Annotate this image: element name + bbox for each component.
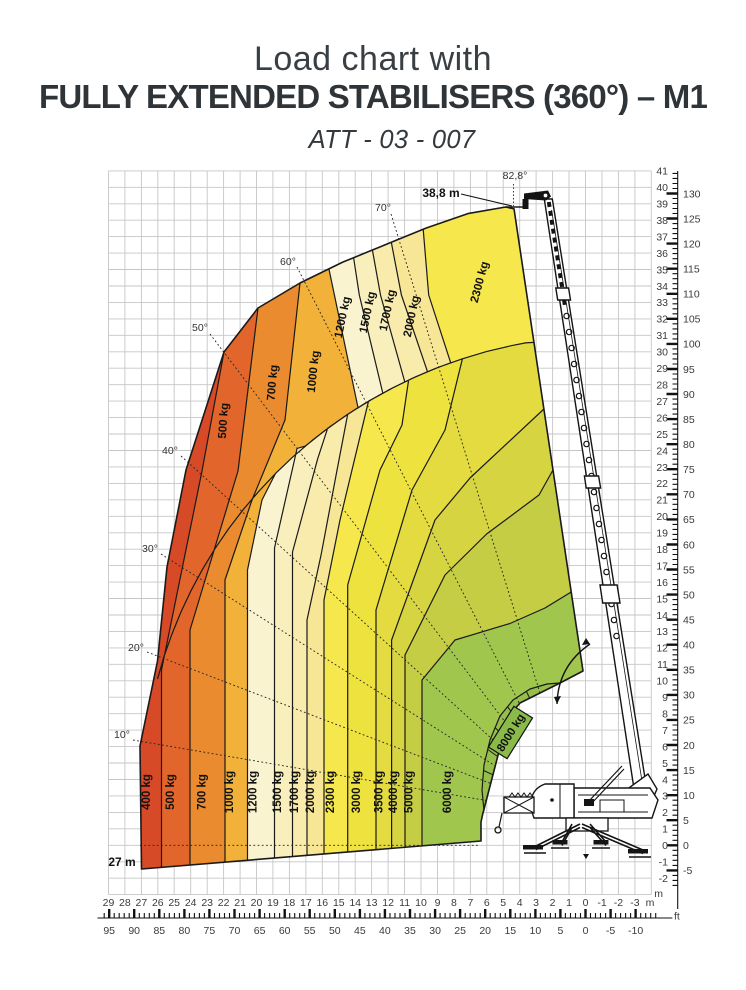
svg-text:5000 kg: 5000 kg xyxy=(404,771,416,813)
svg-text:32: 32 xyxy=(656,314,668,326)
svg-text:30°: 30° xyxy=(142,543,158,555)
svg-text:30: 30 xyxy=(656,347,668,359)
svg-text:65: 65 xyxy=(254,925,266,937)
svg-text:-10: -10 xyxy=(628,925,643,937)
svg-text:105: 105 xyxy=(683,314,701,326)
svg-text:3500 kg: 3500 kg xyxy=(374,771,386,813)
svg-text:-2: -2 xyxy=(659,873,668,885)
svg-text:40°: 40° xyxy=(162,445,178,457)
svg-text:26: 26 xyxy=(152,897,164,909)
svg-text:1500 kg: 1500 kg xyxy=(272,771,284,813)
svg-text:4000 kg: 4000 kg xyxy=(388,771,400,813)
svg-text:1: 1 xyxy=(566,897,572,909)
svg-text:ft: ft xyxy=(674,911,680,923)
svg-text:2000 kg: 2000 kg xyxy=(305,771,317,813)
svg-text:10: 10 xyxy=(415,897,427,909)
svg-text:12: 12 xyxy=(656,643,668,655)
svg-text:25: 25 xyxy=(683,715,695,727)
svg-text:10: 10 xyxy=(656,676,668,688)
svg-text:60: 60 xyxy=(683,539,695,551)
svg-text:90: 90 xyxy=(128,925,140,937)
svg-text:10°: 10° xyxy=(114,729,130,741)
svg-text:8: 8 xyxy=(662,709,668,721)
svg-text:22: 22 xyxy=(656,478,668,490)
svg-text:28: 28 xyxy=(119,897,131,909)
svg-text:-3: -3 xyxy=(630,897,639,909)
svg-text:16: 16 xyxy=(656,577,668,589)
svg-text:20: 20 xyxy=(656,511,668,523)
svg-text:75: 75 xyxy=(204,925,216,937)
svg-text:13: 13 xyxy=(656,626,668,638)
svg-text:25: 25 xyxy=(656,429,668,441)
svg-text:14: 14 xyxy=(656,610,668,622)
svg-text:85: 85 xyxy=(683,414,695,426)
svg-text:100: 100 xyxy=(683,339,701,351)
svg-text:110: 110 xyxy=(683,289,700,301)
svg-text:20: 20 xyxy=(479,925,491,937)
svg-text:35: 35 xyxy=(683,665,695,677)
svg-text:55: 55 xyxy=(304,925,316,937)
svg-text:80: 80 xyxy=(179,925,191,937)
svg-text:50: 50 xyxy=(683,589,695,601)
svg-text:20: 20 xyxy=(251,897,263,909)
svg-text:38: 38 xyxy=(656,215,668,227)
svg-text:4: 4 xyxy=(517,897,523,909)
svg-text:8: 8 xyxy=(451,897,457,909)
svg-text:120: 120 xyxy=(683,238,701,250)
svg-text:24: 24 xyxy=(185,897,197,909)
svg-text:15: 15 xyxy=(504,925,516,937)
svg-text:6000 kg: 6000 kg xyxy=(442,771,454,813)
svg-text:90: 90 xyxy=(683,389,695,401)
svg-text:55: 55 xyxy=(683,564,695,576)
svg-text:-1: -1 xyxy=(597,897,606,909)
svg-text:17: 17 xyxy=(300,897,312,909)
svg-text:95: 95 xyxy=(103,925,115,937)
svg-text:m: m xyxy=(654,888,663,900)
svg-text:50°: 50° xyxy=(192,322,208,334)
svg-text:3: 3 xyxy=(662,791,668,803)
svg-text:60: 60 xyxy=(279,925,291,937)
svg-text:500 kg: 500 kg xyxy=(165,774,177,810)
svg-text:5: 5 xyxy=(557,925,563,937)
svg-text:-5: -5 xyxy=(683,865,692,877)
svg-text:0: 0 xyxy=(683,840,689,852)
svg-text:70: 70 xyxy=(683,489,695,501)
svg-text:6: 6 xyxy=(662,741,668,753)
svg-text:38,8 m: 38,8 m xyxy=(422,186,459,200)
svg-text:25: 25 xyxy=(454,925,466,937)
svg-text:3000 kg: 3000 kg xyxy=(351,771,363,813)
svg-text:130: 130 xyxy=(683,188,701,200)
svg-text:20°: 20° xyxy=(128,642,144,654)
svg-text:15: 15 xyxy=(656,593,668,605)
svg-text:17: 17 xyxy=(656,560,668,572)
svg-text:18: 18 xyxy=(656,544,668,556)
svg-text:1700 kg: 1700 kg xyxy=(289,771,301,813)
svg-text:2: 2 xyxy=(662,807,668,819)
svg-text:29: 29 xyxy=(656,363,668,375)
svg-text:25: 25 xyxy=(168,897,180,909)
svg-text:85: 85 xyxy=(153,925,165,937)
svg-text:700 kg: 700 kg xyxy=(197,774,209,810)
svg-text:29: 29 xyxy=(103,897,115,909)
svg-text:4: 4 xyxy=(662,774,668,786)
svg-text:5: 5 xyxy=(683,815,689,827)
svg-text:23: 23 xyxy=(201,897,213,909)
svg-text:30: 30 xyxy=(429,925,441,937)
svg-text:50: 50 xyxy=(329,925,341,937)
svg-text:5: 5 xyxy=(662,758,668,770)
svg-text:1: 1 xyxy=(662,824,668,836)
svg-text:15: 15 xyxy=(683,765,695,777)
svg-text:0: 0 xyxy=(583,897,589,909)
svg-text:-1: -1 xyxy=(659,857,668,869)
svg-text:37: 37 xyxy=(656,231,668,243)
svg-text:500 kg: 500 kg xyxy=(217,403,231,440)
svg-text:115: 115 xyxy=(683,264,700,276)
svg-text:15: 15 xyxy=(333,897,345,909)
svg-text:13: 13 xyxy=(366,897,378,909)
svg-text:27: 27 xyxy=(656,396,668,408)
svg-text:2300 kg: 2300 kg xyxy=(325,771,337,813)
svg-text:400 kg: 400 kg xyxy=(141,774,153,810)
svg-text:2: 2 xyxy=(550,897,556,909)
svg-text:19: 19 xyxy=(267,897,279,909)
svg-text:19: 19 xyxy=(656,528,668,540)
svg-text:95: 95 xyxy=(683,364,695,376)
svg-text:m: m xyxy=(646,897,655,909)
svg-text:14: 14 xyxy=(349,897,361,909)
svg-text:31: 31 xyxy=(656,330,668,342)
svg-text:10: 10 xyxy=(530,925,542,937)
svg-text:24: 24 xyxy=(656,445,668,457)
svg-text:34: 34 xyxy=(656,281,668,293)
svg-text:36: 36 xyxy=(656,248,668,260)
svg-text:5: 5 xyxy=(500,897,506,909)
svg-text:23: 23 xyxy=(656,462,668,474)
svg-text:40: 40 xyxy=(683,640,695,652)
svg-text:35: 35 xyxy=(656,264,668,276)
svg-text:-2: -2 xyxy=(614,897,623,909)
svg-text:30: 30 xyxy=(683,690,695,702)
svg-text:75: 75 xyxy=(683,464,695,476)
svg-text:27: 27 xyxy=(136,897,148,909)
svg-text:11: 11 xyxy=(657,659,668,671)
svg-text:12: 12 xyxy=(382,897,394,909)
svg-text:9: 9 xyxy=(662,692,668,704)
svg-text:16: 16 xyxy=(316,897,328,909)
svg-text:41: 41 xyxy=(656,166,668,178)
svg-text:20: 20 xyxy=(683,740,695,752)
svg-text:28: 28 xyxy=(656,380,668,392)
svg-text:70°: 70° xyxy=(375,202,391,214)
svg-text:45: 45 xyxy=(683,615,695,627)
svg-text:27 m: 27 m xyxy=(108,855,135,869)
svg-text:60°: 60° xyxy=(280,256,296,268)
svg-text:45: 45 xyxy=(354,925,366,937)
svg-text:3: 3 xyxy=(533,897,539,909)
svg-text:21: 21 xyxy=(656,495,668,507)
svg-text:11: 11 xyxy=(399,897,410,909)
svg-text:82,8°: 82,8° xyxy=(503,170,528,182)
svg-text:26: 26 xyxy=(656,412,668,424)
svg-text:35: 35 xyxy=(404,925,416,937)
svg-text:40: 40 xyxy=(656,182,668,194)
svg-text:1000 kg: 1000 kg xyxy=(224,771,236,813)
svg-text:125: 125 xyxy=(683,213,701,225)
svg-text:-5: -5 xyxy=(606,925,615,937)
svg-text:18: 18 xyxy=(284,897,296,909)
svg-text:65: 65 xyxy=(683,514,695,526)
svg-text:0: 0 xyxy=(583,925,589,937)
svg-text:39: 39 xyxy=(656,199,668,211)
svg-text:22: 22 xyxy=(218,897,230,909)
svg-text:80: 80 xyxy=(683,439,695,451)
svg-text:21: 21 xyxy=(234,897,246,909)
svg-text:40: 40 xyxy=(379,925,391,937)
svg-text:9: 9 xyxy=(435,897,441,909)
svg-text:6: 6 xyxy=(484,897,490,909)
svg-text:7: 7 xyxy=(467,897,473,909)
svg-text:0: 0 xyxy=(662,840,668,852)
svg-text:1200 kg: 1200 kg xyxy=(248,771,260,813)
svg-text:33: 33 xyxy=(656,297,668,309)
svg-text:70: 70 xyxy=(229,925,241,937)
svg-text:10: 10 xyxy=(683,790,695,802)
svg-text:7: 7 xyxy=(662,725,668,737)
